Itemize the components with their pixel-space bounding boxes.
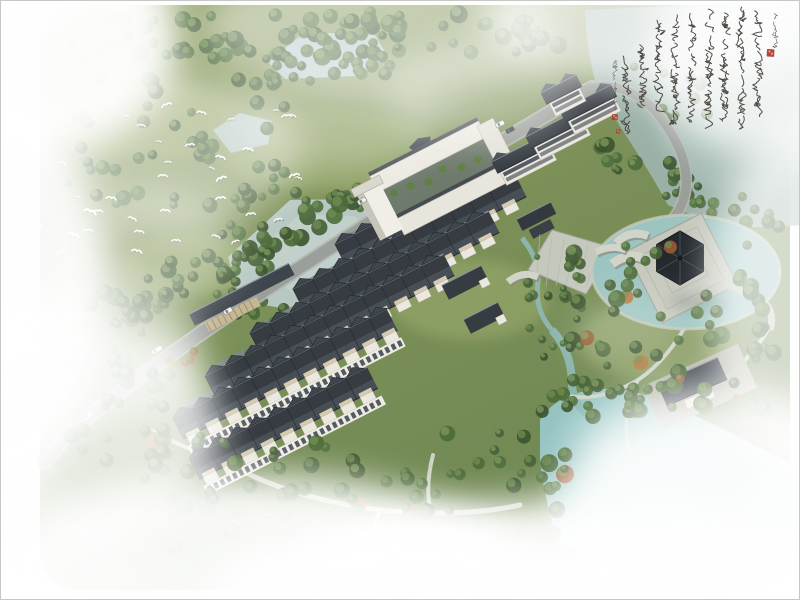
signature-seal bbox=[612, 114, 618, 120]
mist-layer bbox=[0, 0, 800, 600]
rendering-canvas bbox=[0, 0, 800, 600]
title-seal bbox=[767, 49, 775, 57]
architectural-rendering: Aerial bird's-eye architectural renderin… bbox=[0, 0, 800, 600]
signature-seal-small bbox=[616, 129, 621, 134]
